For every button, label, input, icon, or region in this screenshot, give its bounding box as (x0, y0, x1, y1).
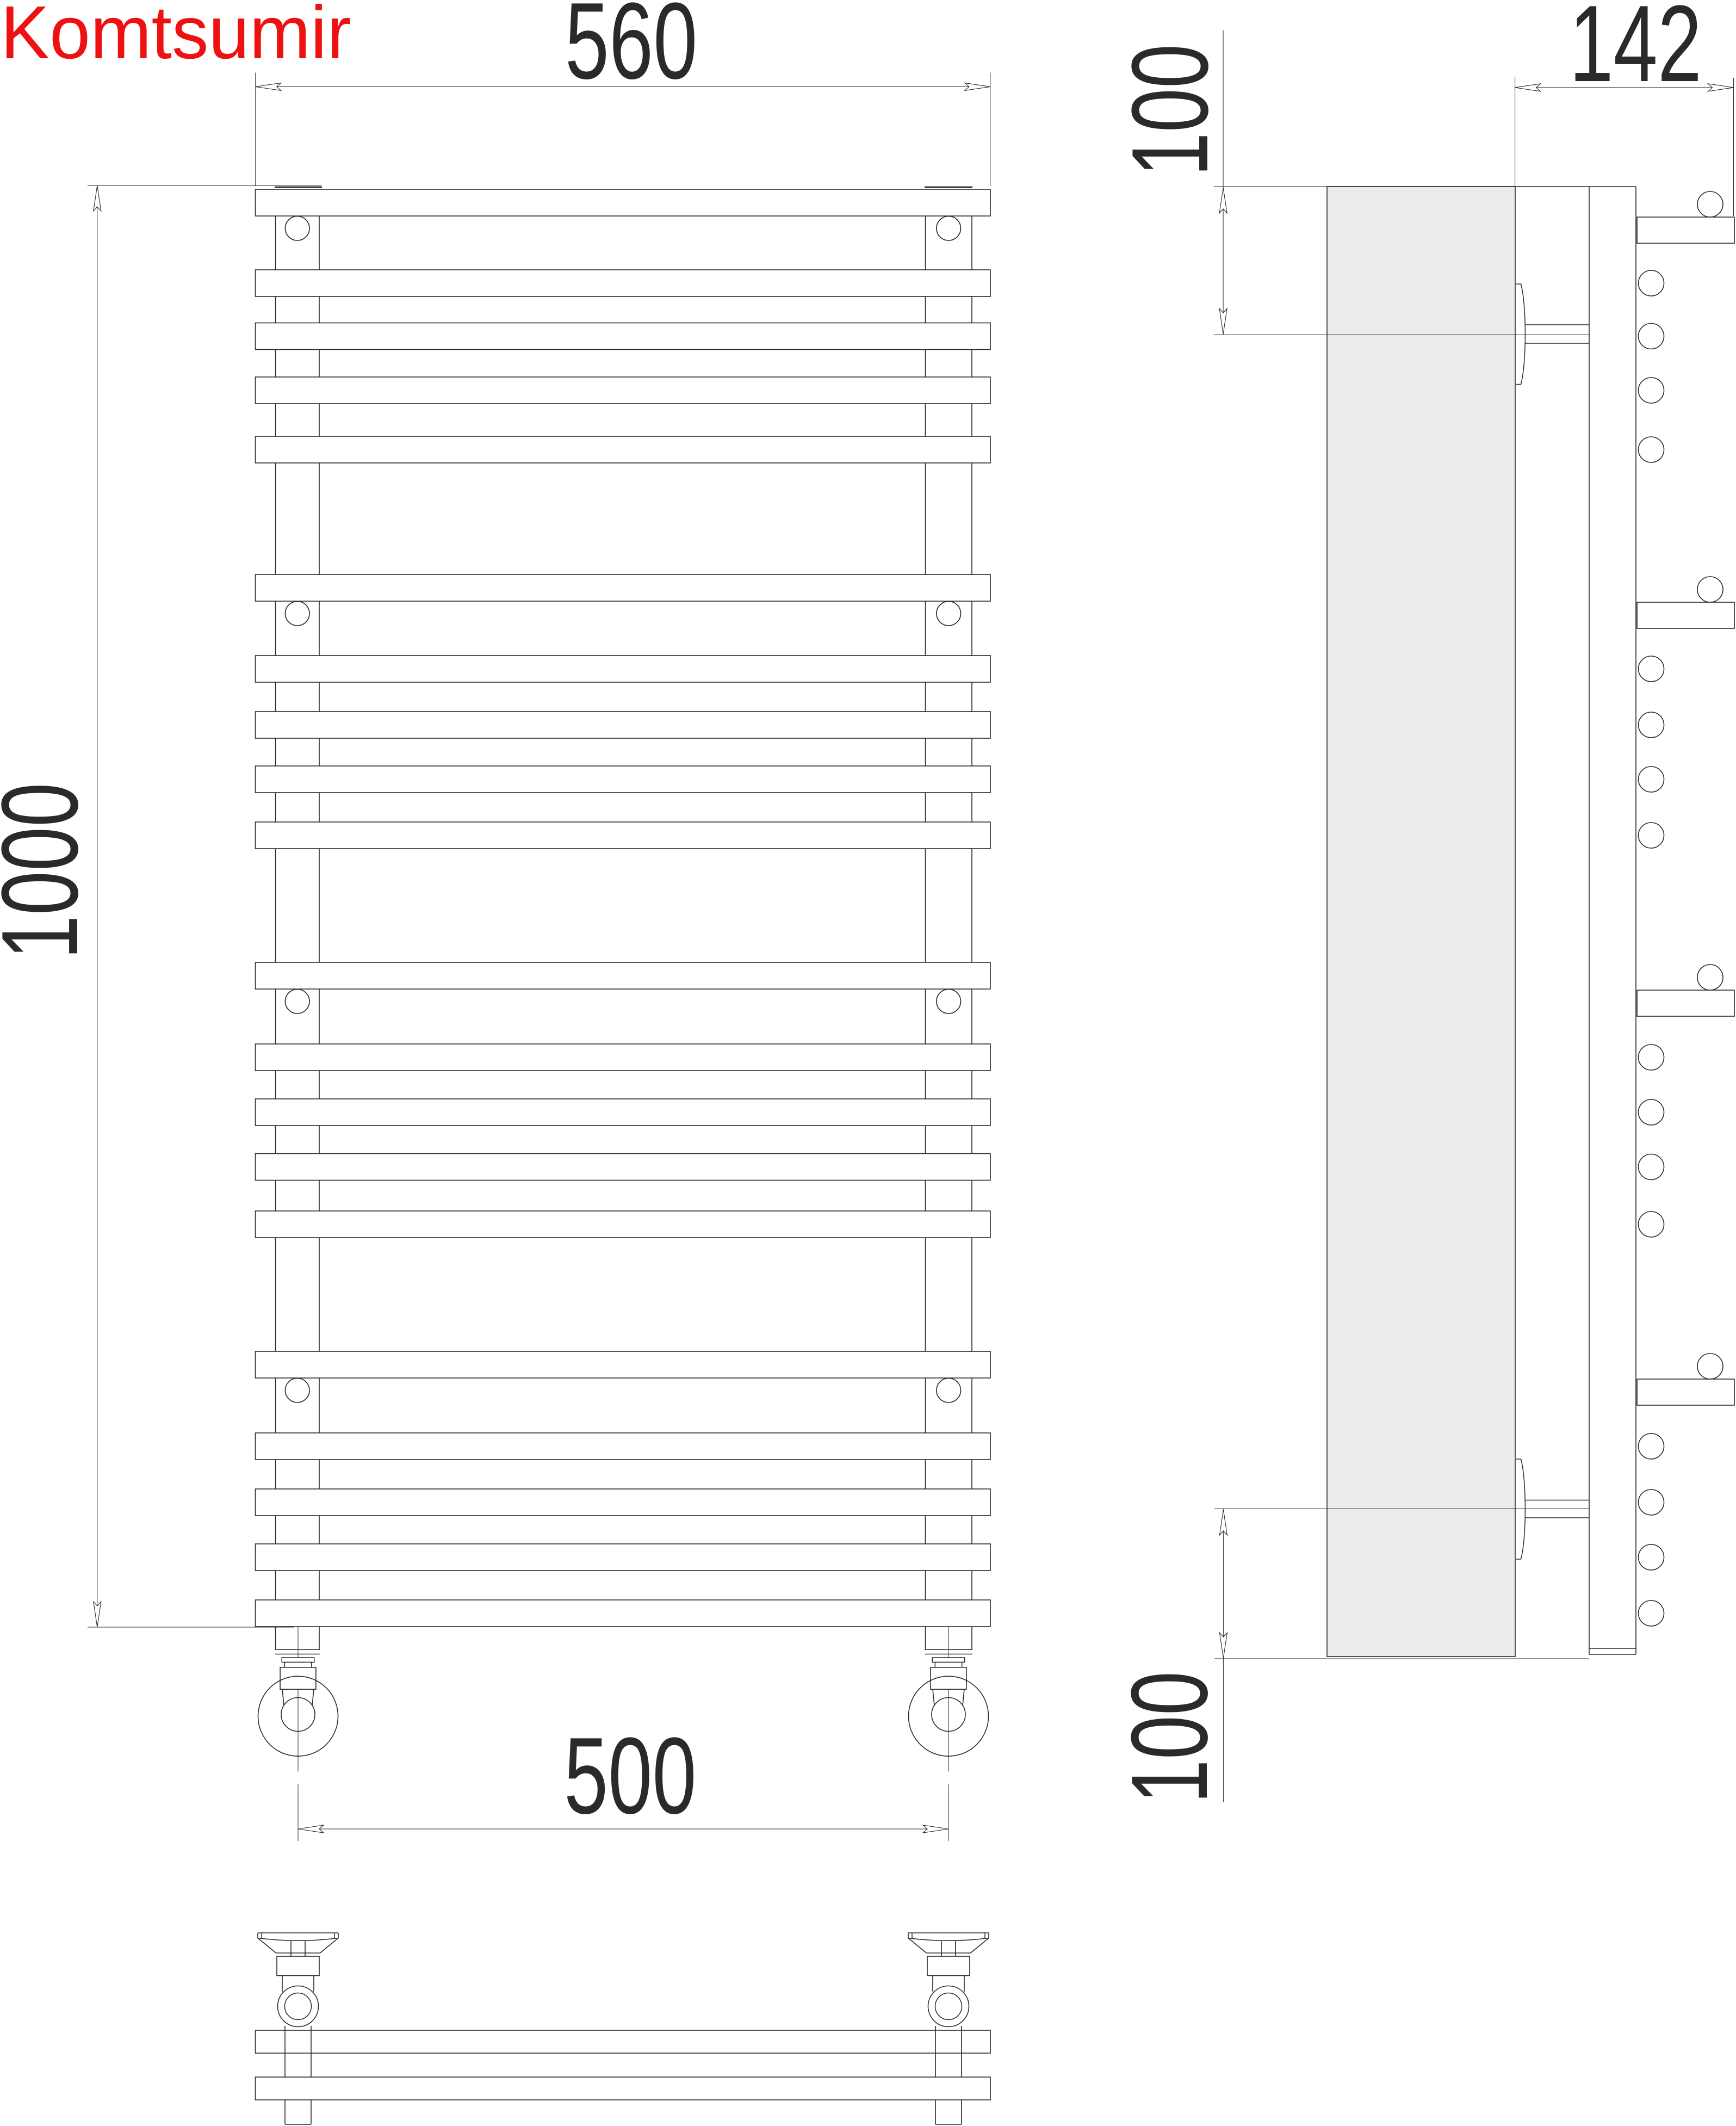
svg-text:500: 500 (564, 1715, 697, 1837)
svg-text:100: 100 (1109, 44, 1231, 177)
svg-text:Komtsumir: Komtsumir (1, 0, 351, 74)
svg-text:100: 100 (1109, 1671, 1231, 1804)
svg-text:142: 142 (1570, 0, 1702, 104)
svg-text:1000: 1000 (0, 783, 101, 960)
svg-text:560: 560 (565, 0, 698, 102)
